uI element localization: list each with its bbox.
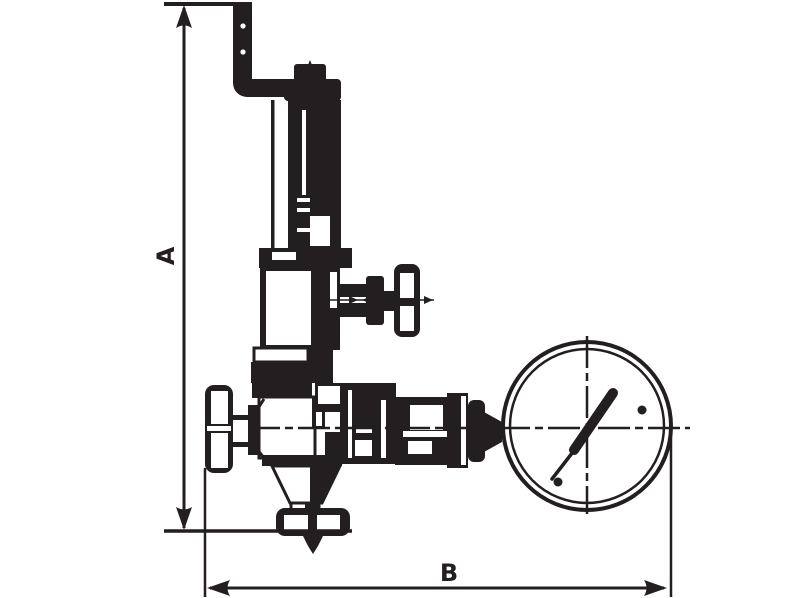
body-bottom-band	[262, 455, 342, 466]
branch-window	[355, 440, 372, 456]
drawing-canvas: A B	[0, 0, 800, 598]
union-window	[408, 441, 432, 454]
housing-window	[310, 216, 330, 246]
bonnet-slot	[330, 272, 337, 308]
branch-slot	[348, 390, 352, 458]
outlet-flange-slot	[317, 515, 340, 530]
side-handwheel-slot	[400, 306, 414, 331]
side-handwheel-valve	[324, 264, 434, 337]
dim-b-arrow-left	[207, 580, 230, 596]
coupling-highlight	[272, 252, 296, 260]
body-right-lower-block	[325, 432, 342, 456]
union-nut-highlight	[461, 396, 466, 465]
handwheel-slot	[211, 433, 228, 468]
housing-left-wall	[271, 100, 275, 258]
union-window	[410, 405, 443, 430]
outlet-flange-slot	[284, 515, 308, 530]
thread-mark	[297, 208, 310, 212]
yoke-flange	[251, 348, 333, 383]
top-cap	[284, 79, 341, 101]
side-handwheel-slot	[400, 273, 414, 298]
pipe-highlight-dot	[240, 49, 245, 54]
bonnet-window	[266, 271, 311, 345]
dim-a-arrow-down	[176, 507, 192, 530]
branch-window	[318, 386, 340, 404]
outlet-tail	[303, 536, 323, 546]
gauge-socket	[484, 412, 502, 452]
gauge-needle-tail	[552, 448, 576, 479]
yoke-flange-plate	[254, 348, 308, 362]
gauge-union-coupling	[315, 383, 502, 468]
thread-mark	[297, 198, 310, 202]
handwheel-hub-line	[207, 426, 231, 431]
gland	[248, 405, 258, 455]
body-right-slot	[316, 412, 322, 426]
dim-a-label: A	[152, 246, 180, 265]
dim-b-label: B	[440, 559, 458, 587]
valve-technical-drawing: A B	[0, 0, 800, 598]
thread-mark	[297, 228, 310, 232]
centerline-arrow	[424, 296, 433, 304]
union-gap	[403, 431, 447, 437]
union-ring	[468, 400, 485, 462]
yoke-band	[251, 362, 333, 383]
dim-b-arrow-right	[644, 580, 667, 596]
bottom-outlet	[272, 466, 350, 554]
gauge-needle-blade	[574, 393, 613, 450]
spindle-highlight	[302, 110, 306, 195]
pipe-highlight-dot	[240, 23, 245, 28]
gauge-scale-dot-max	[638, 406, 647, 415]
outlet-tip	[308, 546, 318, 554]
gauge-scale-dot-min	[554, 478, 563, 487]
dim-a-arrow-up	[176, 5, 192, 28]
handwheel-slot	[211, 391, 228, 424]
bonnet	[260, 266, 340, 350]
